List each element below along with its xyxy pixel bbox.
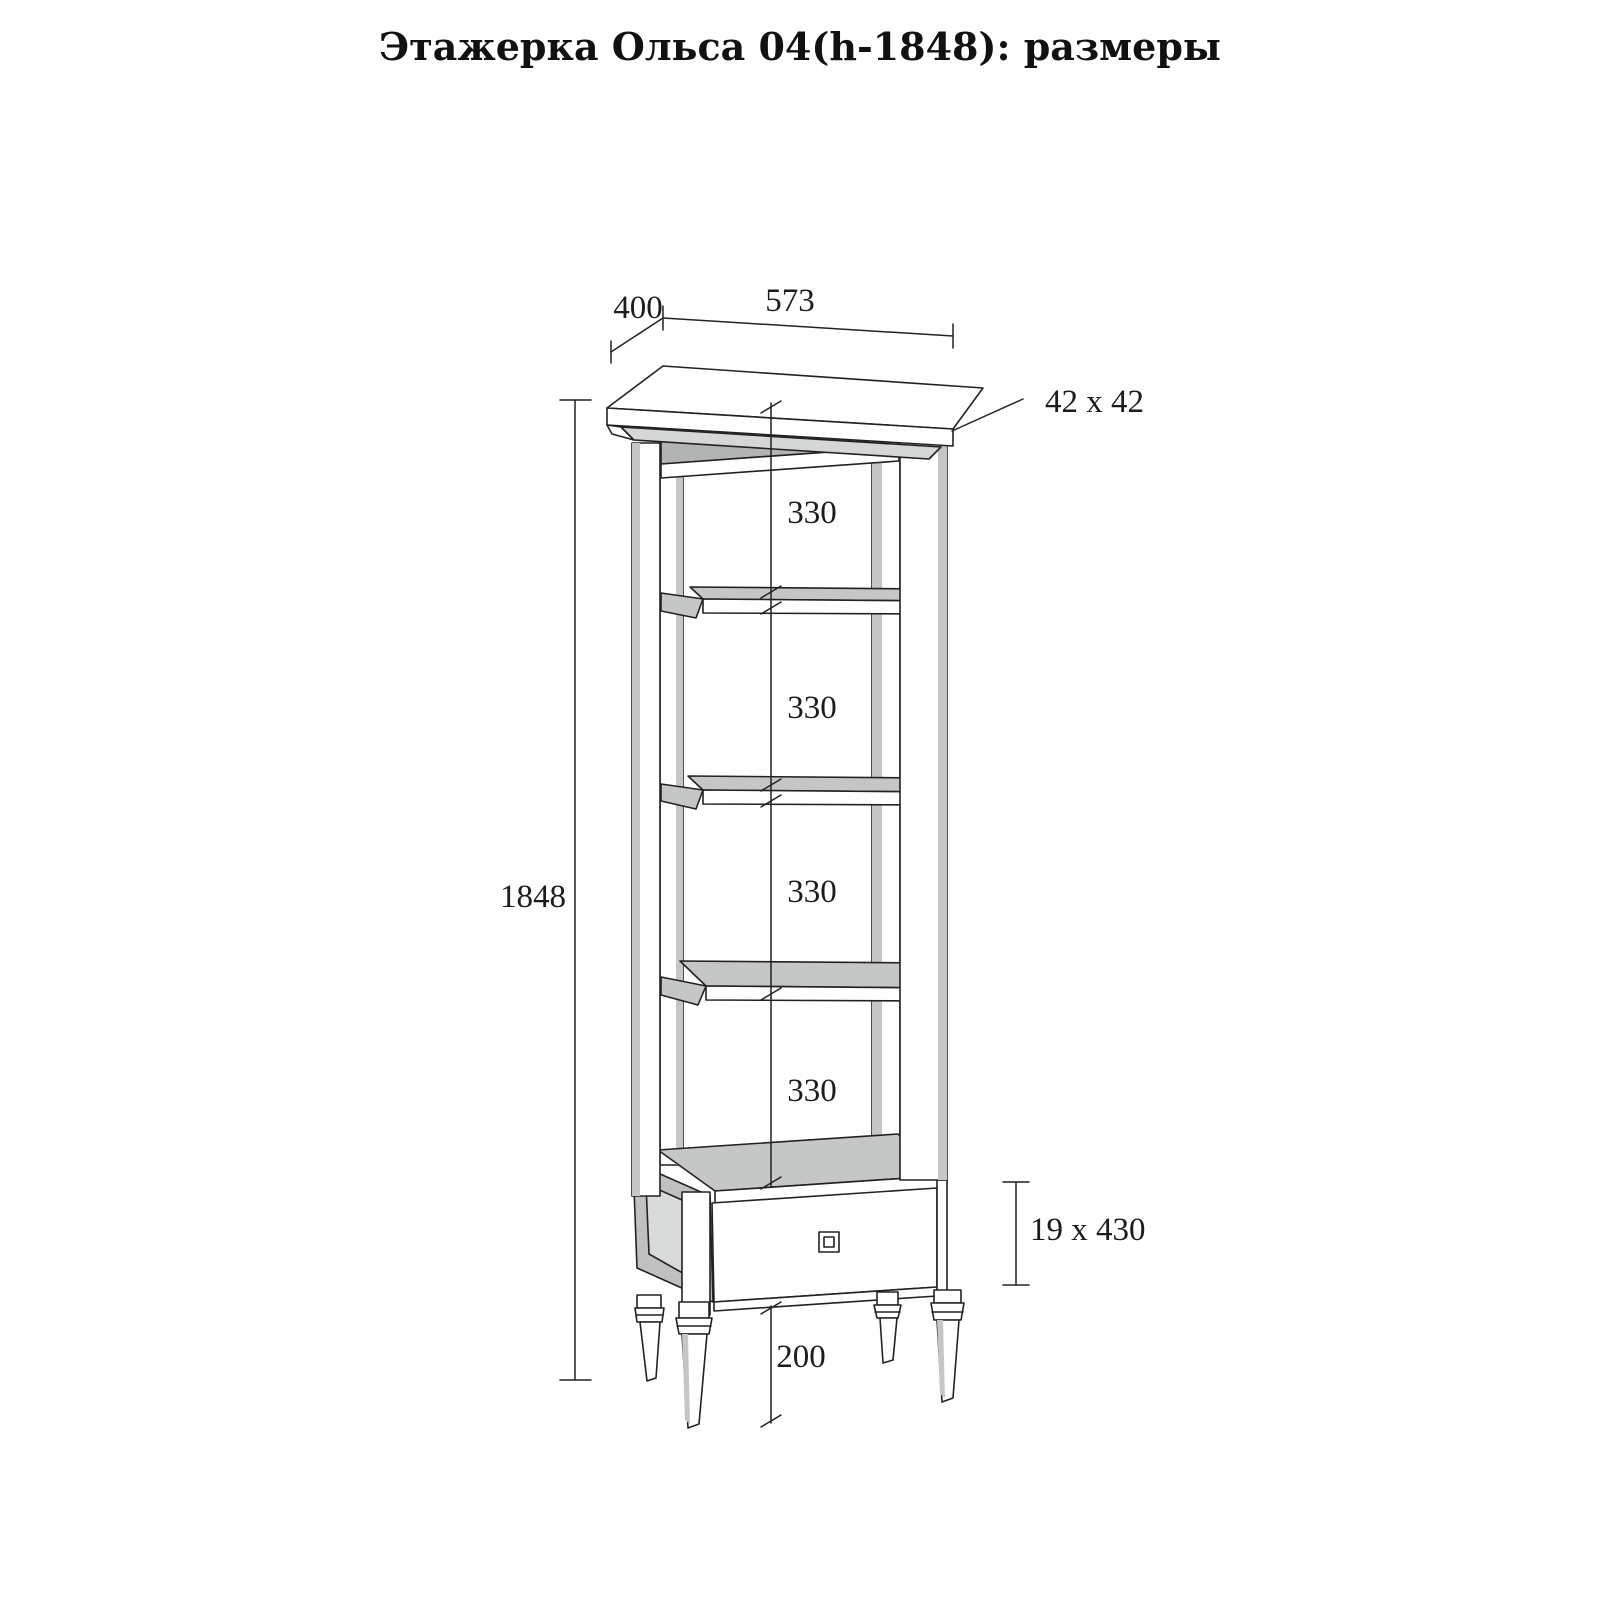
post-front-right (900, 430, 947, 1180)
drawer-handle (819, 1232, 839, 1252)
diagram-page: Этажерка Ольса 04(h-1848): размеры (0, 0, 1600, 1600)
dim-label-shelf-gap-3: 330 (787, 874, 837, 910)
dim-line-drawer (1003, 1182, 1029, 1285)
shelf-2 (661, 776, 941, 809)
dim-label-leg-height: 200 (776, 1339, 826, 1375)
etagere-drawing: 573 400 42 x 42 1848 330 330 330 330 19 … (0, 0, 1600, 1600)
leg-front-left (676, 1302, 712, 1428)
dim-label-shelf-gap-4: 330 (787, 1073, 837, 1109)
stile-front-left (682, 1192, 710, 1315)
leg-back-right (874, 1292, 901, 1363)
shelf-1 (661, 587, 941, 618)
dim-label-drawer-section: 19 x 430 (1030, 1212, 1146, 1248)
stile-front-right (937, 1180, 947, 1292)
post-front-left (632, 443, 660, 1196)
dim-label-shelf-gap-2: 330 (787, 690, 837, 726)
dim-label-shelf-gap-1: 330 (787, 495, 837, 531)
dim-label-post-section: 42 x 42 (1045, 384, 1144, 420)
dim-label-total-height: 1848 (500, 879, 566, 915)
leg-front-right (931, 1290, 964, 1402)
shelf-3 (661, 961, 941, 1005)
dim-label-depth: 400 (613, 290, 663, 326)
dim-label-width: 573 (765, 283, 815, 319)
leg-back-left (635, 1295, 664, 1381)
